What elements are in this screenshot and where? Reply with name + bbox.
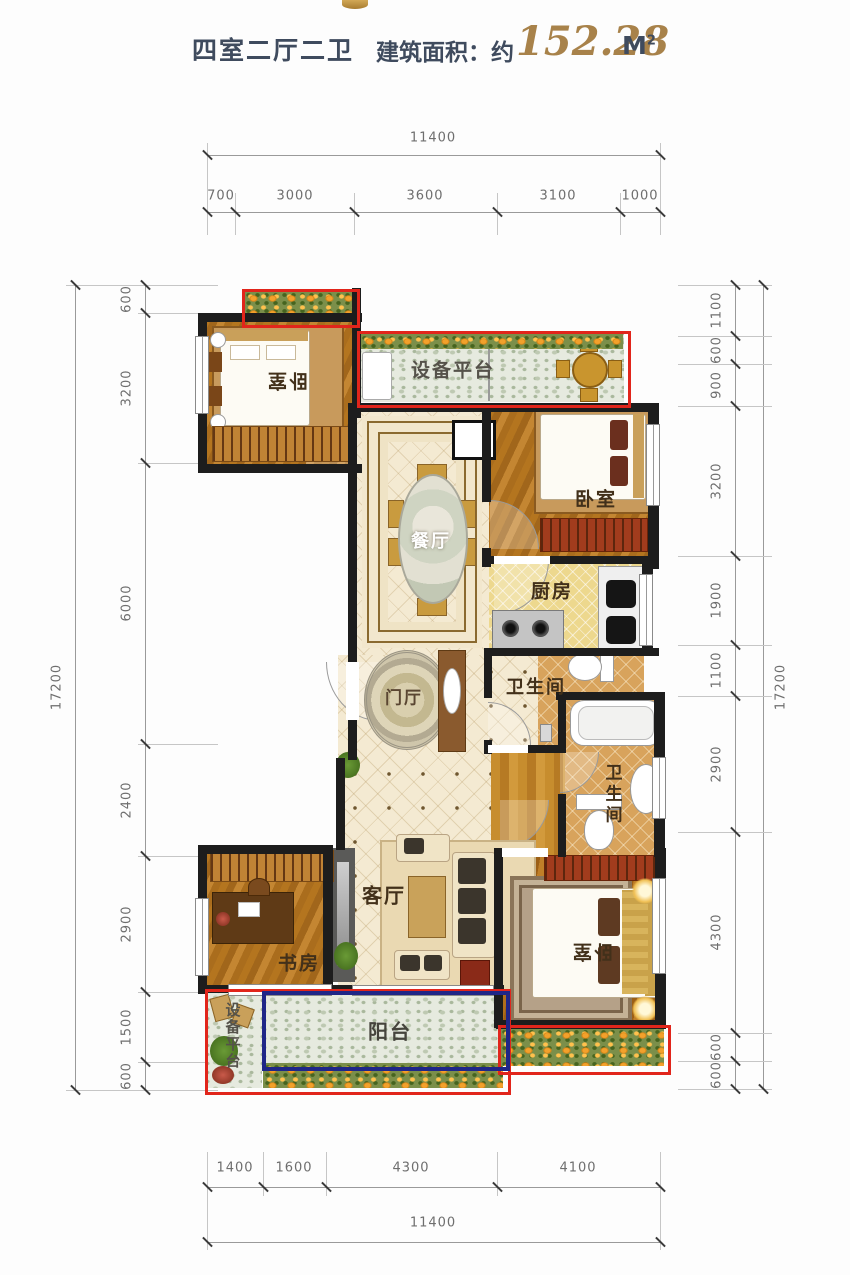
living-sofa-cushion [458, 858, 486, 884]
study-chair [248, 878, 270, 896]
wall [556, 692, 665, 700]
label-bedroom2: 卧室 [575, 485, 617, 512]
area-unit-m: M [622, 31, 647, 60]
layout-title: 四室二厅二卫 [192, 31, 354, 67]
label-bath2: 卫生间 [600, 764, 625, 827]
wall [323, 845, 333, 994]
dim-label: 1100 [710, 291, 725, 328]
dim-guide [207, 1152, 208, 1250]
dim-label: 2900 [120, 905, 135, 942]
bath2-tub-inner [578, 706, 654, 740]
dim-label: 600 [710, 1061, 725, 1089]
dim-label: 4300 [710, 913, 725, 950]
label-kitchen: 厨房 [531, 577, 573, 604]
dim-label: 1600 [275, 1161, 312, 1176]
wall [198, 464, 362, 473]
wall [198, 845, 333, 854]
bedroom2-headboard [633, 414, 644, 498]
dim-label: 4100 [559, 1161, 596, 1176]
study-flowerpot [216, 912, 230, 926]
dim-label: 600 [120, 285, 135, 313]
dim-guide [678, 556, 772, 557]
dim-line-bottom-seg [207, 1187, 660, 1188]
living-sofa-cushion [458, 918, 486, 944]
area-unit-exp: 2 [647, 34, 656, 49]
door-gap [346, 662, 359, 720]
dim-guide [678, 364, 772, 365]
bedroom2-wardrobe [540, 518, 648, 552]
wall [336, 758, 345, 850]
dim-line-top-total [207, 155, 660, 156]
window-bedroom1 [195, 336, 209, 414]
label-bedroom1: 卧室 [266, 369, 308, 396]
bedroom3-pillow [598, 898, 620, 936]
bath1-fixture [540, 724, 552, 742]
dim-guide [678, 1089, 772, 1090]
dim-label: 11400 [410, 131, 456, 146]
label-balcony: 阳台 [368, 1016, 412, 1045]
window-study [195, 898, 209, 976]
kitchen-burner [532, 620, 549, 637]
label-foyer: 门厅 [385, 684, 423, 709]
living-armchair-cushion [400, 955, 420, 971]
living-armchair-cushion [404, 838, 424, 854]
dim-guide [138, 744, 218, 745]
living-armchair-cushion [424, 955, 442, 971]
dim-label: 3200 [710, 462, 725, 499]
bedroom2-pillow [610, 420, 628, 450]
dim-label: 1500 [120, 1008, 135, 1045]
bath1-toilet-tank [600, 652, 614, 682]
dim-label: 2400 [120, 781, 135, 818]
wall [642, 648, 659, 656]
wall [484, 648, 492, 698]
bedroom1-wardrobe [212, 426, 356, 462]
bedroom1-headboard [220, 330, 308, 341]
dim-label: 17200 [50, 664, 65, 710]
kitchen-sink [606, 580, 636, 608]
wall [348, 405, 357, 662]
living-plant [334, 942, 358, 970]
label-bath1: 卫生间 [506, 673, 566, 699]
logo-fragment [342, 0, 368, 9]
floorplan-page: 四室二厅二卫 建筑面积：约 152.28 M2 1140070030003600… [0, 0, 850, 1275]
label-study: 书房 [278, 949, 320, 976]
dim-label: 6000 [120, 584, 135, 621]
dim-label: 4300 [392, 1161, 429, 1176]
dim-guide [66, 1090, 218, 1091]
kitchen-burner [502, 620, 519, 637]
wall [484, 648, 659, 656]
label-bedroom3: 卧室 [571, 940, 613, 967]
annotation-red-planter-bedroom1 [242, 289, 360, 328]
label-dining: 餐厅 [411, 527, 451, 553]
wall [558, 694, 566, 752]
dim-label: 700 [207, 189, 235, 204]
area-unit: M2 [622, 31, 656, 60]
dim-line-bottom-total [207, 1242, 660, 1243]
area-label: 建筑面积：约 [376, 33, 514, 67]
dim-label: 17200 [774, 664, 789, 710]
dim-guide [678, 1033, 772, 1034]
bedroom2-pillow [610, 456, 628, 486]
dim-label: 900 [710, 371, 725, 399]
dim-line-left-total [75, 285, 76, 1090]
dim-guide [678, 832, 772, 833]
dim-guide [678, 285, 772, 286]
window-kitchen [639, 574, 653, 646]
label-equipment-top: 设备平台 [411, 356, 495, 383]
living-sofa-cushion [458, 888, 486, 914]
dim-guide [678, 645, 772, 646]
study-desk-paper [238, 902, 260, 917]
dim-label: 2900 [710, 745, 725, 782]
dim-guide [678, 406, 772, 407]
bedroom1-pillow [230, 345, 260, 360]
bedroom1-pillow [266, 345, 296, 360]
dim-label: 1000 [621, 189, 658, 204]
label-equipment-bottom: 设备平台 [223, 1002, 244, 1070]
dim-label: 3100 [539, 189, 576, 204]
wall [482, 548, 491, 567]
dim-label: 1900 [710, 581, 725, 618]
dim-line-left-seg [145, 285, 146, 1090]
door-gap [494, 556, 550, 564]
dim-label: 1100 [710, 651, 725, 688]
label-living: 客厅 [362, 880, 406, 909]
dim-label: 1400 [216, 1161, 253, 1176]
kitchen-sink [606, 616, 636, 644]
dim-label: 11400 [410, 1216, 456, 1231]
dim-label: 600 [120, 1062, 135, 1090]
dim-label: 3600 [406, 189, 443, 204]
wall [558, 794, 566, 857]
study-wardrobe [210, 850, 334, 882]
window-bath2 [652, 757, 666, 819]
window-bedroom2 [646, 424, 660, 506]
dim-label: 3000 [276, 189, 313, 204]
bedroom3-gold-throw [622, 890, 648, 994]
dim-label: 3200 [120, 369, 135, 406]
living-side-table [460, 960, 490, 986]
door-gap [488, 745, 528, 753]
dim-guide [678, 696, 772, 697]
dim-label: 600 [710, 336, 725, 364]
annotation-red-planter-bedroom3 [498, 1025, 671, 1075]
foyer-mirror [443, 668, 461, 714]
window-bedroom3 [652, 878, 666, 974]
dim-line-top-seg [207, 212, 660, 213]
bedroom1-lamp [210, 332, 226, 348]
bath1-toilet-bowl [568, 653, 602, 681]
dim-guide [660, 1152, 661, 1250]
living-coffee-table [408, 876, 446, 938]
wall [348, 720, 357, 760]
dim-guide [678, 336, 772, 337]
wall [482, 405, 491, 502]
dim-guide [678, 1061, 772, 1062]
dim-label: 600 [710, 1033, 725, 1061]
dim-guide [66, 285, 218, 286]
door-gap [502, 848, 548, 857]
